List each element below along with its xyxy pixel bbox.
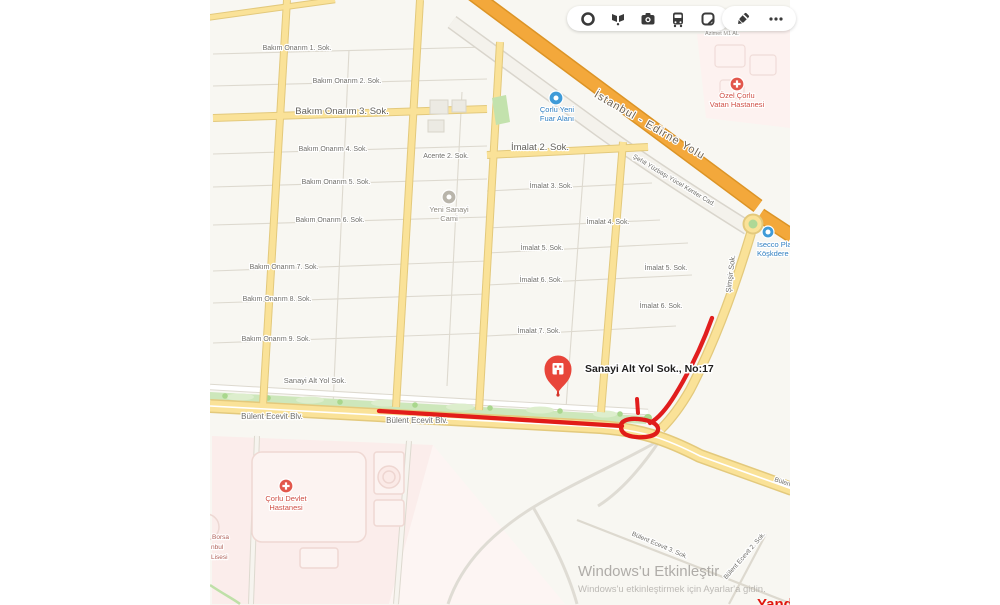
street-label: Bakım Onarım 4. Sok. <box>299 146 368 153</box>
poi-label: Çorlu Devlet <box>265 494 307 503</box>
poi-label: Vatan Hastanesi <box>710 100 765 109</box>
street-label: Bakım Onarım 8. Sok. <box>243 296 312 303</box>
panoramas-icon[interactable] <box>607 8 629 30</box>
poi-label: Cami <box>440 214 458 223</box>
street-label: nbul <box>211 544 224 551</box>
traffic-icon[interactable] <box>577 8 599 30</box>
map-toolbar-extra <box>722 6 796 31</box>
building-icon <box>553 363 564 375</box>
bookmark-icon[interactable] <box>697 8 719 30</box>
street-label: İmalat 3. Sok. <box>530 181 573 190</box>
windows-watermark-subtitle: Windows'u etkinleştirmek için Ayarlar'a … <box>578 584 766 595</box>
poi-label: Köşkdere <box>757 249 789 258</box>
roundabout <box>744 215 763 234</box>
street-label: Sanayi Alt Yol Sok. <box>284 376 347 385</box>
pencil-icon[interactable] <box>732 8 754 30</box>
more-icon[interactable] <box>765 8 787 30</box>
poi-label: Hastanesi <box>269 503 303 512</box>
poi-label: Isecco Plaz <box>757 240 796 249</box>
marker-label: Sanayi Alt Yol Sok., No:17 <box>585 363 714 375</box>
street-label: Bülent Ecevit Blv. <box>241 412 303 421</box>
poi-label: Çorlu Yeni <box>540 105 575 114</box>
map-toolbar <box>567 6 729 31</box>
transport-icon[interactable] <box>667 8 689 30</box>
street-label: Bakım Onarım 6. Sok. <box>296 217 365 224</box>
helipad <box>378 466 400 488</box>
windows-watermark-title: Windows'u Etkinleştir <box>578 563 719 580</box>
screenshot-root: Çorlu YeniFuar AlanıYeni SanayiCamiÖzel … <box>0 0 1000 605</box>
street-label: İmalat 5. Sok. <box>645 263 688 272</box>
street-label: İmalat 5. Sok. <box>521 243 564 252</box>
street-label: Bülent Ecevit Blv. <box>386 416 448 425</box>
poi-label: Yeni Sanayi <box>429 205 469 214</box>
street-label: Bakım Onarım 5. Sok. <box>302 179 371 186</box>
poi-label: Fuar Alanı <box>540 114 574 123</box>
street-label: Lisesi <box>211 554 228 561</box>
street-label: Bakım Onarım 9. Sok. <box>242 336 311 343</box>
street-label: İmalat 4. Sok. <box>587 217 630 226</box>
poi-label: Özel Çorlu <box>719 91 754 100</box>
street-label: Azimet M1 AL <box>705 31 739 37</box>
street-label: Acente 2. Sok. <box>423 153 469 160</box>
street-label: Bakım Onarım 3. Sok. <box>295 106 388 117</box>
map-canvas[interactable]: Çorlu YeniFuar AlanıYeni SanayiCamiÖzel … <box>0 0 1000 605</box>
street-label: Bakım Onarım 7. Sok. <box>250 264 319 271</box>
street-label: Borsa <box>212 534 229 541</box>
street-label: İmalat 2. Sok. <box>511 142 569 153</box>
street-label: Bakım Onarım 2. Sok. <box>313 78 382 85</box>
street-label: Bakım Onarım 1. Sok. <box>263 45 332 52</box>
street-label: İmalat 7. Sok. <box>518 326 561 335</box>
street-label: İmalat 6. Sok. <box>520 275 563 284</box>
yandex-logo[interactable]: Yandex <box>757 596 810 605</box>
photos-icon[interactable] <box>637 8 659 30</box>
street-label: İmalat 6. Sok. <box>640 301 683 310</box>
